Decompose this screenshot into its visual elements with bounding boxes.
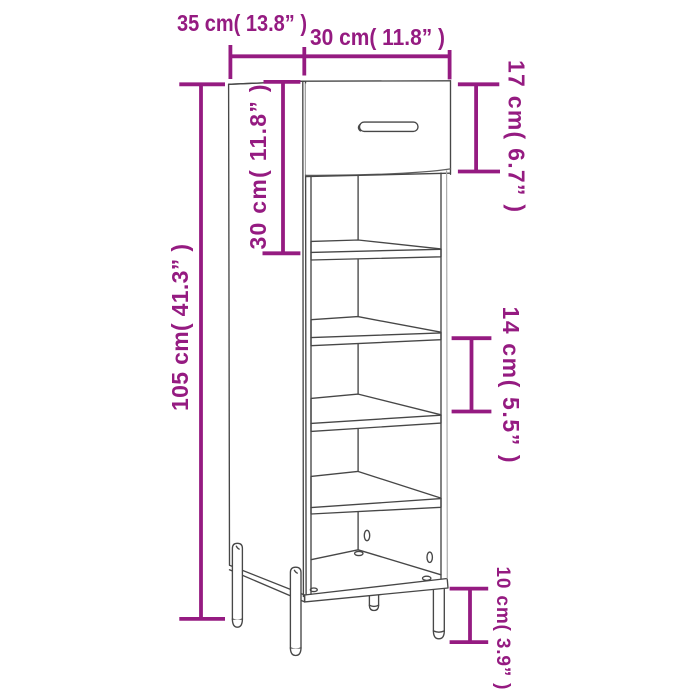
svg-text:30 cm( 11.8” ): 30 cm( 11.8” ) (245, 85, 271, 250)
svg-text:35 cm( 13.8” ): 35 cm( 13.8” ) (177, 10, 307, 36)
svg-text:10 cm( 3.9” ): 10 cm( 3.9” ) (492, 567, 513, 690)
svg-text:30 cm( 11.8” ): 30 cm( 11.8” ) (310, 24, 445, 50)
svg-text:105 cm( 41.3” ): 105 cm( 41.3” ) (167, 244, 193, 411)
svg-text:14 cm( 5.5” ): 14 cm( 5.5” ) (498, 307, 524, 463)
svg-text:17 cm( 6.7” ): 17 cm( 6.7” ) (504, 60, 530, 212)
